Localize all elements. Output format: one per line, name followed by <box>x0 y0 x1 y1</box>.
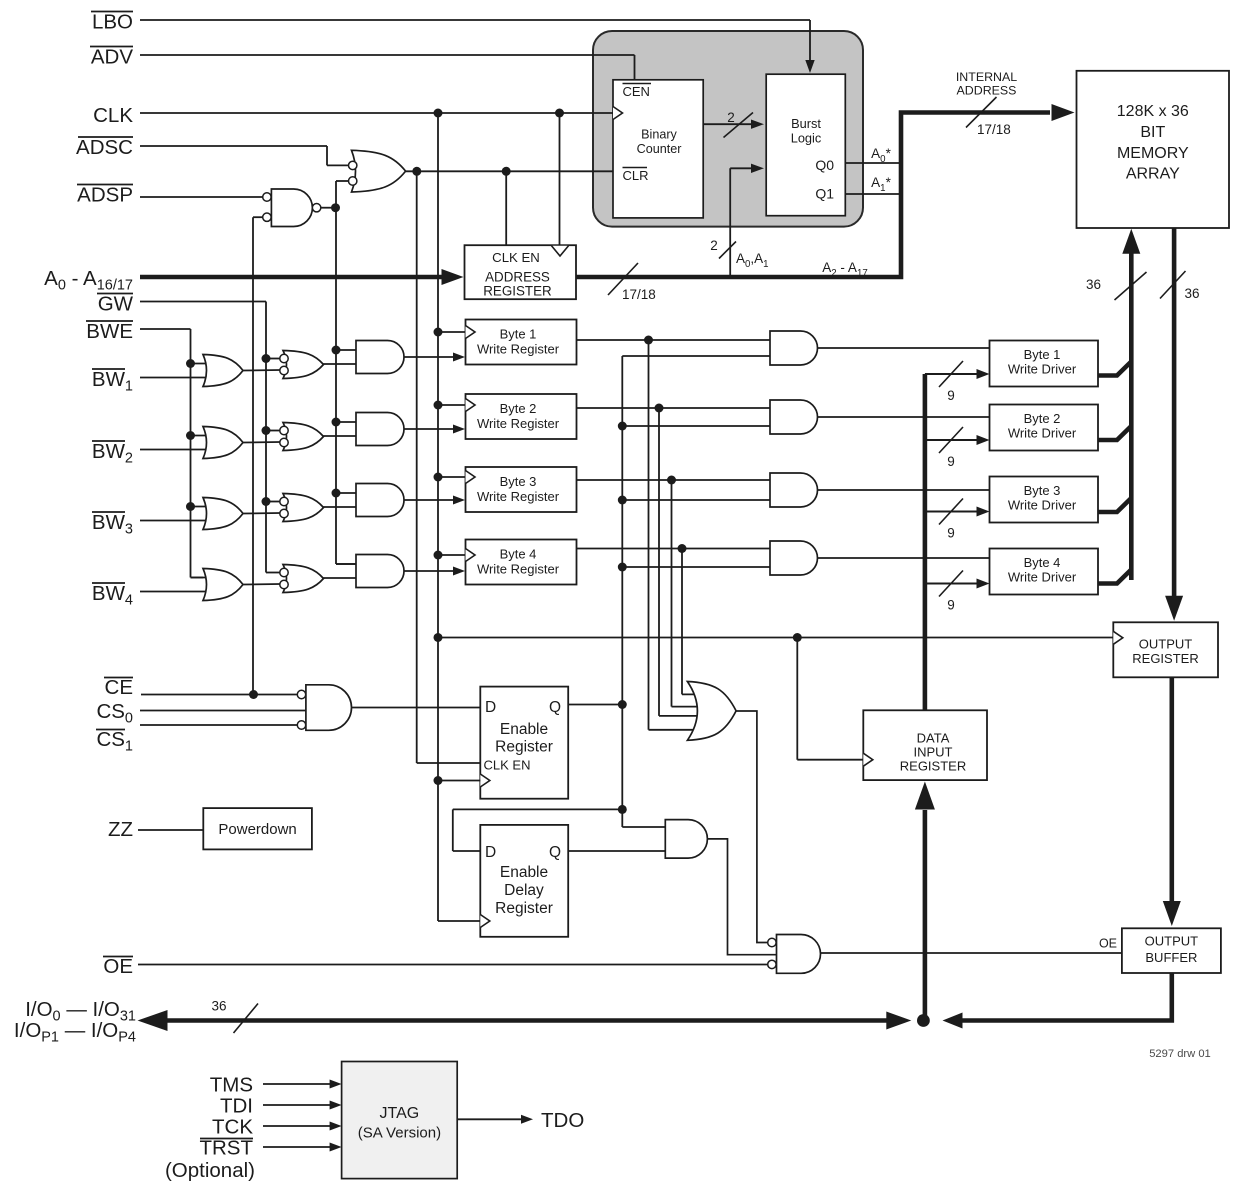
svg-text:Q: Q <box>549 699 561 716</box>
svg-text:2: 2 <box>727 110 735 125</box>
svg-text:OE: OE <box>1099 937 1117 951</box>
svg-text:36: 36 <box>1086 277 1101 292</box>
svg-text:BIT: BIT <box>1140 124 1165 141</box>
svg-text:Burst: Burst <box>791 116 821 131</box>
svg-text:Write Register: Write Register <box>477 342 560 357</box>
svg-text:MEMORY: MEMORY <box>1117 145 1189 162</box>
svg-text:I/OP1 — I/OP4: I/OP1 — I/OP4 <box>14 1019 136 1046</box>
svg-text:Write Driver: Write Driver <box>1008 570 1077 585</box>
svg-text:Counter: Counter <box>637 142 682 156</box>
svg-text:Byte 2: Byte 2 <box>1024 411 1061 426</box>
svg-text:9: 9 <box>947 526 955 541</box>
svg-text:Byte 4: Byte 4 <box>1024 555 1061 570</box>
svg-text:Byte 1: Byte 1 <box>500 327 537 342</box>
svg-text:Write Register: Write Register <box>477 489 560 504</box>
svg-text:ADV: ADV <box>91 46 133 69</box>
svg-text:Binary: Binary <box>641 128 677 142</box>
svg-text:Byte 4: Byte 4 <box>500 547 537 562</box>
svg-text:D: D <box>485 844 496 861</box>
svg-text:Byte 1: Byte 1 <box>1024 347 1061 362</box>
svg-text:9: 9 <box>947 598 955 613</box>
svg-text:OE: OE <box>103 955 133 978</box>
svg-text:9: 9 <box>947 388 955 403</box>
svg-text:ADDRESS: ADDRESS <box>957 84 1017 98</box>
svg-text:17/18: 17/18 <box>977 122 1011 137</box>
svg-text:Q: Q <box>549 844 561 861</box>
svg-text:OUTPUT: OUTPUT <box>1145 934 1199 949</box>
svg-text:OUTPUT: OUTPUT <box>1139 637 1193 652</box>
svg-text:ADSP: ADSP <box>77 184 133 207</box>
svg-text:TRST: TRST <box>199 1137 253 1160</box>
svg-text:DATA: DATA <box>917 731 950 746</box>
svg-text:Logic: Logic <box>791 131 822 146</box>
svg-text:ADSC: ADSC <box>76 136 133 159</box>
svg-text:9: 9 <box>947 454 955 469</box>
svg-text:INTERNAL: INTERNAL <box>956 70 1017 84</box>
svg-text:Write Register: Write Register <box>477 562 560 577</box>
svg-text:REGISTER: REGISTER <box>483 284 552 299</box>
svg-text:2: 2 <box>710 238 718 253</box>
svg-text:GW: GW <box>98 293 134 316</box>
svg-text:Write Register: Write Register <box>477 416 560 431</box>
svg-text:BUFFER: BUFFER <box>1145 950 1197 965</box>
svg-text:CLK: CLK <box>93 104 133 127</box>
svg-text:Register: Register <box>495 900 553 917</box>
svg-text:Write Driver: Write Driver <box>1008 498 1077 513</box>
svg-text:CLR: CLR <box>623 168 649 183</box>
svg-text:Q1: Q1 <box>815 186 834 202</box>
svg-text:REGISTER: REGISTER <box>1132 651 1198 666</box>
svg-text:D: D <box>485 699 496 716</box>
svg-text:Enable: Enable <box>500 721 548 738</box>
svg-text:36: 36 <box>211 999 226 1014</box>
svg-text:TDI: TDI <box>220 1095 253 1118</box>
svg-text:CLK EN: CLK EN <box>484 758 531 773</box>
svg-text:Register: Register <box>495 739 553 756</box>
svg-text:JTAG: JTAG <box>380 1105 420 1122</box>
svg-text:(SA Version): (SA Version) <box>358 1125 441 1142</box>
svg-text:ZZ: ZZ <box>108 818 133 841</box>
svg-text:TCK: TCK <box>212 1116 253 1139</box>
svg-text:17/18: 17/18 <box>622 287 656 302</box>
svg-text:Write Driver: Write Driver <box>1008 362 1077 377</box>
svg-text:Q0: Q0 <box>815 157 834 173</box>
svg-text:5297 drw 01: 5297 drw 01 <box>1149 1048 1211 1060</box>
svg-text:REGISTER: REGISTER <box>900 759 966 774</box>
svg-text:ARRAY: ARRAY <box>1126 166 1180 183</box>
svg-text:TMS: TMS <box>210 1074 253 1097</box>
svg-text:Write Driver: Write Driver <box>1008 426 1077 441</box>
svg-text:CE: CE <box>105 676 133 699</box>
svg-text:36: 36 <box>1184 286 1199 301</box>
svg-text:Delay: Delay <box>504 882 544 899</box>
svg-text:Byte 3: Byte 3 <box>1024 483 1061 498</box>
svg-text:Powerdown: Powerdown <box>218 821 296 838</box>
svg-text:128K x 36: 128K x 36 <box>1117 103 1189 120</box>
svg-text:LBO: LBO <box>92 11 133 34</box>
svg-text:CEN: CEN <box>623 84 650 99</box>
svg-text:TDO: TDO <box>541 1109 584 1132</box>
svg-text:(Optional): (Optional) <box>165 1159 255 1182</box>
svg-text:INPUT: INPUT <box>914 745 953 760</box>
svg-text:Byte 3: Byte 3 <box>500 474 537 489</box>
svg-text:BWE: BWE <box>86 320 133 343</box>
svg-text:ADDRESS: ADDRESS <box>485 270 550 285</box>
svg-text:Byte 2: Byte 2 <box>500 401 537 416</box>
svg-text:Enable: Enable <box>500 864 548 881</box>
svg-text:CLK EN: CLK EN <box>492 250 540 265</box>
